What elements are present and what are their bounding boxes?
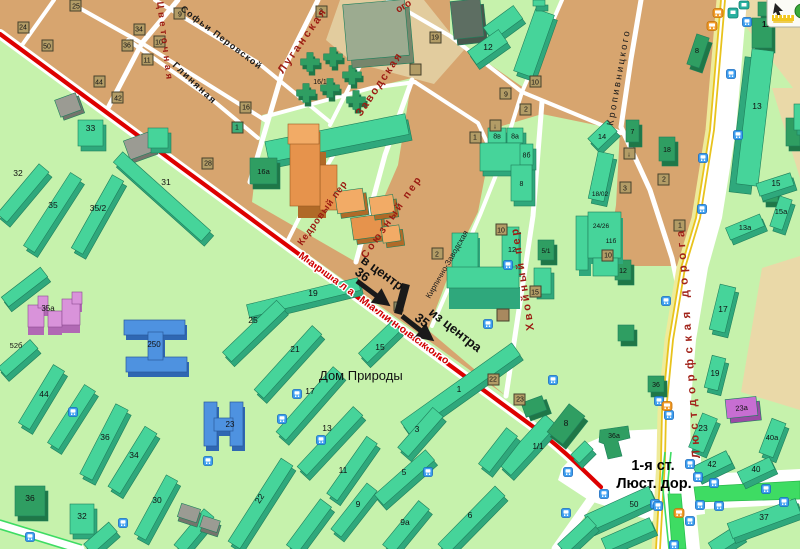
svg-text:19: 19	[431, 35, 439, 42]
svg-text:15: 15	[375, 342, 385, 352]
svg-text:11: 11	[339, 465, 348, 475]
svg-text:15: 15	[531, 290, 539, 297]
svg-text:42: 42	[114, 96, 122, 103]
svg-text:32: 32	[13, 168, 23, 178]
svg-text:5: 5	[402, 467, 407, 477]
svg-text:40а: 40а	[766, 433, 779, 442]
svg-text:17: 17	[305, 386, 315, 396]
svg-text:14: 14	[598, 132, 606, 141]
svg-text:18/02: 18/02	[592, 191, 609, 198]
svg-text:16а: 16а	[257, 167, 270, 176]
svg-text:23: 23	[226, 420, 235, 429]
svg-text:24: 24	[19, 25, 27, 32]
svg-text:1: 1	[457, 384, 462, 394]
svg-text:36: 36	[25, 493, 35, 503]
svg-text:35/2: 35/2	[90, 203, 107, 213]
svg-text:8а: 8а	[511, 134, 519, 141]
svg-text:21: 21	[290, 344, 300, 354]
svg-text:3: 3	[623, 186, 627, 193]
svg-text:42: 42	[708, 460, 717, 469]
svg-text:9: 9	[356, 499, 361, 509]
svg-text:↓: ↓	[493, 124, 497, 131]
svg-text:9а: 9а	[400, 517, 410, 527]
svg-text:10: 10	[531, 80, 539, 87]
svg-text:7: 7	[631, 129, 635, 136]
svg-text:25: 25	[248, 315, 258, 325]
svg-text:12: 12	[619, 268, 627, 275]
svg-text:17: 17	[718, 304, 728, 314]
svg-text:9: 9	[504, 92, 508, 99]
svg-text:28: 28	[204, 161, 212, 168]
svg-text:31: 31	[161, 177, 171, 187]
svg-text:36а: 36а	[608, 433, 620, 440]
svg-text:8б: 8б	[523, 152, 531, 160]
svg-text:10: 10	[497, 228, 505, 235]
svg-text:32: 32	[77, 511, 87, 521]
svg-text:19: 19	[711, 369, 720, 378]
svg-text:36: 36	[123, 43, 131, 50]
svg-text:36: 36	[652, 382, 660, 389]
svg-text:13а: 13а	[739, 223, 752, 232]
svg-text:36: 36	[100, 432, 110, 442]
svg-text:1-я ст.: 1-я ст.	[631, 458, 674, 474]
svg-text:11: 11	[143, 58, 150, 65]
svg-text:44: 44	[39, 389, 49, 399]
svg-text:22: 22	[489, 377, 497, 384]
svg-text:8: 8	[520, 181, 524, 188]
svg-text:15а: 15а	[775, 207, 788, 216]
svg-text:Люст. дор.: Люст. дор.	[616, 476, 691, 492]
svg-text:30: 30	[152, 495, 162, 505]
svg-text:13: 13	[752, 101, 762, 111]
svg-text:8в: 8в	[493, 134, 501, 141]
svg-text:23а: 23а	[735, 403, 749, 413]
svg-text:1: 1	[235, 125, 239, 132]
svg-text:18: 18	[663, 147, 671, 154]
svg-text:23: 23	[516, 397, 524, 404]
svg-text:8: 8	[564, 418, 569, 428]
svg-text:50: 50	[43, 44, 51, 51]
svg-text:25: 25	[72, 4, 80, 11]
svg-text:2: 2	[435, 252, 439, 259]
svg-text:34: 34	[129, 450, 139, 460]
svg-text:10: 10	[604, 253, 612, 260]
svg-text:40: 40	[752, 465, 761, 474]
svg-text:2: 2	[524, 107, 528, 114]
svg-text:19: 19	[308, 288, 318, 298]
svg-text:2: 2	[662, 177, 666, 184]
svg-text:1: 1	[473, 135, 477, 142]
svg-text:44: 44	[95, 80, 103, 87]
svg-text:33: 33	[86, 123, 96, 133]
svg-text:3: 3	[415, 424, 420, 434]
svg-text:16/1: 16/1	[313, 79, 327, 86]
svg-text:6: 6	[468, 510, 473, 520]
svg-text:24/26: 24/26	[593, 223, 610, 230]
svg-text:5/1: 5/1	[541, 248, 550, 255]
svg-text:16: 16	[242, 105, 250, 112]
svg-text:35а: 35а	[41, 304, 55, 313]
svg-text:37: 37	[759, 512, 769, 522]
svg-text:34: 34	[135, 27, 143, 34]
svg-text:Дом Природы: Дом Природы	[319, 368, 403, 383]
svg-text:8: 8	[695, 46, 699, 55]
svg-text:12: 12	[483, 42, 493, 52]
svg-text:11б: 11б	[606, 237, 617, 245]
svg-text:35: 35	[48, 200, 58, 210]
svg-text:↓: ↓	[627, 152, 631, 159]
svg-text:52б: 52б	[10, 341, 23, 350]
svg-text:1/1: 1/1	[532, 442, 544, 451]
svg-text:50: 50	[630, 500, 639, 509]
svg-text:250: 250	[147, 340, 161, 349]
svg-text:15: 15	[772, 179, 781, 188]
svg-text:13: 13	[322, 423, 332, 433]
